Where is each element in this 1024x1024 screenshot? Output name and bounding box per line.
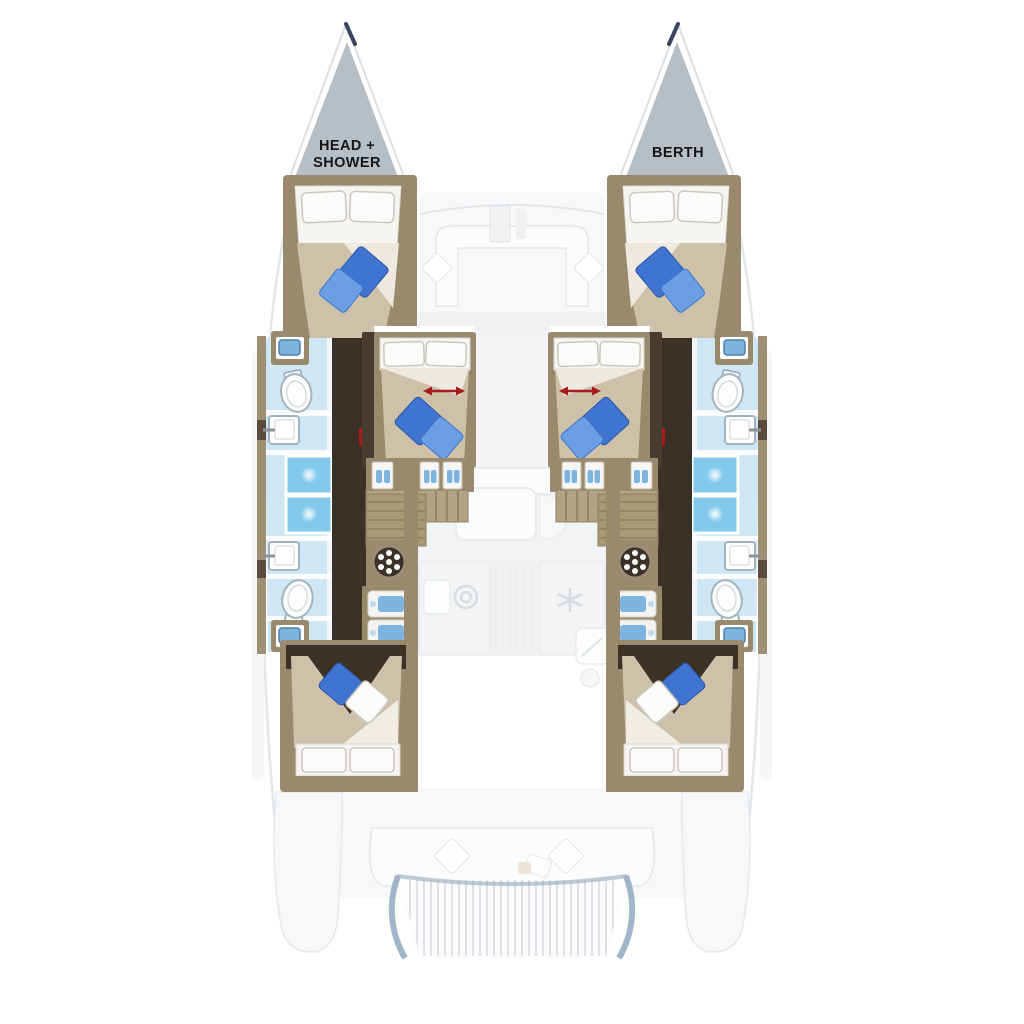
bow-left-label-line1: HEAD + [319, 138, 375, 154]
pillow [349, 191, 394, 223]
washing-machine-icon [373, 546, 405, 578]
floorplan-canvas: HEAD + SHOWER BERTH [0, 0, 1024, 1024]
mid-cabin [362, 326, 476, 468]
bow-left-label-line2: SHOWER [313, 155, 381, 171]
glass-locker-icon [372, 462, 393, 489]
hull-stern [274, 792, 342, 952]
sink-icon [263, 416, 299, 444]
cabin-trim [362, 332, 376, 468]
outboard-wall [257, 336, 266, 654]
vanity-sink-icon [271, 331, 309, 365]
sink-icon [263, 542, 299, 570]
shower-drain [296, 501, 322, 527]
pillow [384, 341, 425, 366]
shower-drain [296, 462, 322, 488]
pillow [426, 341, 467, 366]
helm-seat [581, 669, 599, 687]
aft-table [518, 862, 531, 874]
bathroom-strip [257, 331, 332, 654]
forward-locker [516, 209, 526, 239]
galley-sink-icon [424, 580, 450, 614]
locker-row [366, 458, 474, 492]
catamaran-floorplan: HEAD + SHOWER BERTH [0, 0, 1024, 1024]
glass-locker-icon [443, 462, 462, 489]
fridge-drawer-icon [368, 591, 410, 617]
pillow [350, 748, 394, 772]
forward-hatch [490, 206, 510, 242]
outboard-hatch [257, 560, 266, 578]
pillow [301, 191, 347, 223]
aft-cabin [280, 640, 412, 792]
glass-locker-icon [420, 462, 439, 489]
pillow [302, 748, 346, 772]
cabin-foot-wall [284, 776, 410, 792]
bow-right-label: BERTH [652, 145, 704, 161]
